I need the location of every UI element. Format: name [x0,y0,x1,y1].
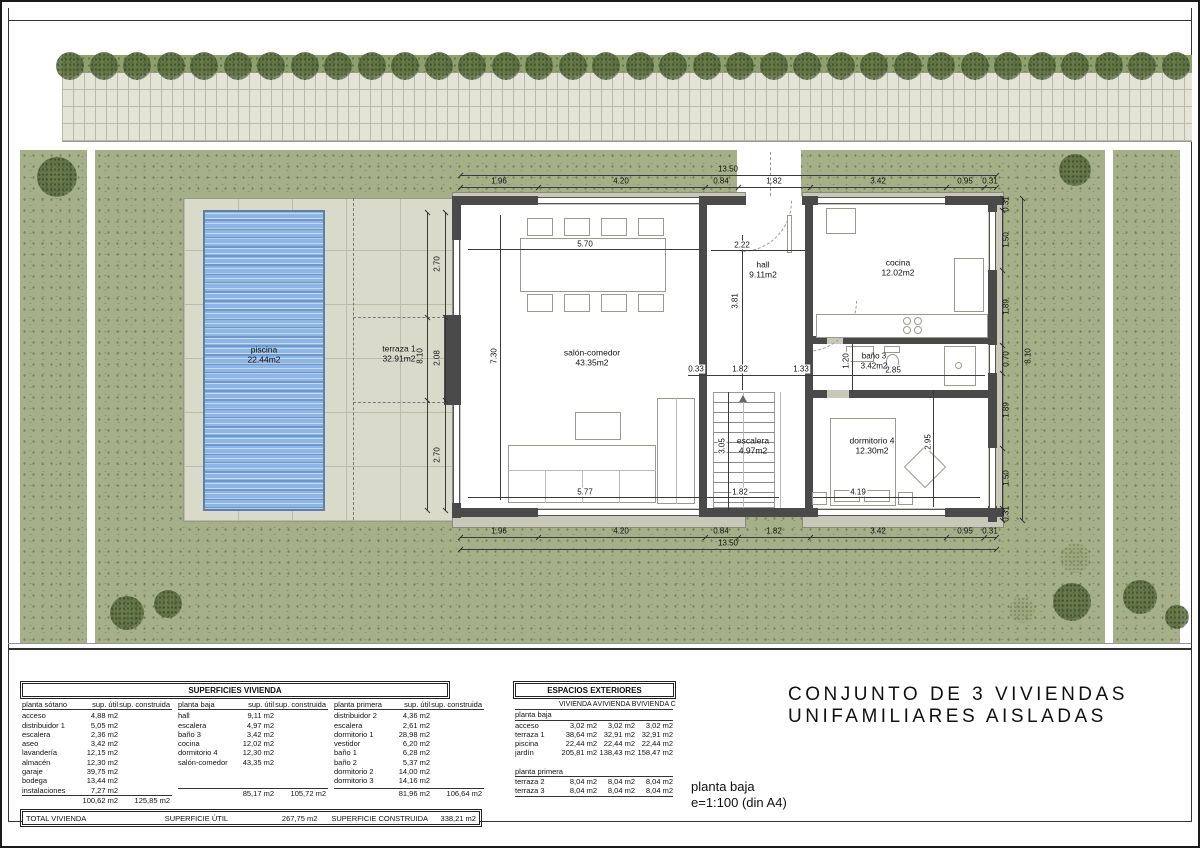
dimension-label: 0.31 [1002,506,1011,522]
table-cell: 158,47 m2 [635,748,673,757]
site-top-line [8,20,1191,21]
dimension-line [707,497,779,498]
furniture [575,412,621,440]
table-spacer [515,758,673,767]
dimension-line [688,375,832,376]
dimension-label: 13.50 [718,165,738,174]
table-cell: sup. construida [118,700,170,709]
window [453,240,460,315]
dimension-line [427,212,428,510]
table-cell: 12,02 m2 [236,739,274,748]
tree-icon [224,52,252,80]
tree-icon [1165,605,1189,629]
table-cell: 22,44 m2 [635,739,673,748]
table-cell: distribuidor 1 [22,721,80,730]
dimension-label: 2.70 [433,256,442,272]
table-row: planta primerasup. útilsup. construida [334,700,484,710]
project-title: CONJUNTO DE 3 VIVIENDAS UNIFAMILIARES AI… [788,684,1128,728]
dimension-line [468,497,702,498]
cooktop-burner-icon [955,362,962,369]
tree-icon [827,52,855,80]
dimension-label: 0.95 [957,527,973,536]
tree-icon [525,52,553,80]
label-piscina: piscina 22.44m2 [247,346,280,365]
table-cell: 28,98 m2 [392,730,430,739]
dormitorio4-name: dormitorio 4 [850,436,895,446]
table-cell [334,789,392,798]
table-row: dormitorio 214,00 m2 [334,767,484,776]
table-row: 85,17 m2105,72 m2 [178,788,328,798]
tree-icon [927,52,955,80]
table-cell: 4,36 m2 [392,711,430,720]
furniture [812,492,827,505]
dimension-label: 8.10 [1024,348,1033,364]
table-cell: baño 2 [334,758,392,767]
dimension-label: 4.20 [613,527,629,536]
table-row: aseo3,42 m2 [22,739,172,748]
table-cell: 14,16 m2 [392,776,430,785]
tree-icon [760,52,788,80]
table-cell: 9,11 m2 [236,711,274,720]
wall-segment [988,506,997,522]
table-cell: terraza 1 [515,730,559,739]
sidewalk-paving [62,72,1192,142]
table-cell [601,767,639,776]
label-terraza1: terraza 1 32.91m2 [382,345,416,364]
dimension-label: 3.81 [731,292,740,310]
dimension-label: 0.95 [957,177,973,186]
terrace-dashed-line-v [353,198,354,520]
table-cell: 12,30 m2 [236,748,274,757]
table-cell: 8,04 m2 [635,777,673,786]
piscina-area: 22.44m2 [247,354,280,364]
exteriores-title: ESPACIOS EXTERIORES [547,686,642,695]
total-vivienda-bar: TOTAL VIVIENDA SUPERFICIE ÚTIL 267,75 m2… [22,811,480,825]
table-cell [515,700,559,709]
table-cell [274,748,326,757]
dimension-label: 7.30 [490,347,499,365]
table-cell: baño 1 [334,748,392,757]
table-cell: planta baja [178,700,236,709]
table-cell: piscina [515,739,559,748]
hall-area: 9.11m2 [749,269,777,279]
table-row: planta baja [515,710,673,720]
table-row: bodega13,44 m2 [22,776,172,785]
table-row: distribuidor 15,05 m2 [22,721,172,730]
window [538,197,699,204]
wall-segment [699,508,813,517]
table-cell: 32,91 m2 [597,730,635,739]
table-row: planta sótanosup. útilsup. construida [22,700,172,710]
tree-icon [994,52,1022,80]
furniture [954,258,984,312]
wall-segment [988,196,997,212]
dimension-label: 0.33 [687,365,705,374]
table-row: 81,96 m2106,64 m2 [334,788,484,798]
table-cell: planta primera [515,767,563,776]
cocina-area: 12.02m2 [881,267,914,277]
dimension-label: 0.84 [713,527,729,536]
table-cell [274,739,326,748]
table-cell: 106,64 m2 [430,789,482,798]
corridor-line [780,392,781,508]
table-cell [430,758,482,767]
table-cell [118,748,170,757]
table-cell: instalaciones [22,786,80,795]
tree-icon [391,52,419,80]
dimension-label: 2.22 [733,241,751,250]
piscina-name: piscina [251,345,277,355]
tree-icon [1028,52,1056,80]
tree-icon [90,52,118,80]
table-row: escalera2,61 m2 [334,721,484,730]
access-dashed-line [770,152,771,196]
table-cell: 7,27 m2 [80,786,118,795]
table-cell: 13,44 m2 [80,776,118,785]
table-cell: bodega [22,776,80,785]
table-row: dormitorio 412,30 m2 [178,748,328,757]
dimension-label: 0.70 [1002,351,1011,367]
table-cell: aseo [22,739,80,748]
total-util-label: SUPERFICIE ÚTIL [165,814,262,823]
tree-icon [894,52,922,80]
table-cell: dormitorio 2 [334,767,392,776]
table-cell: 8,04 m2 [559,786,597,795]
table-cell: lavandería [22,748,80,757]
site-bottom-line-thin [8,643,1191,644]
table-cell: 3,02 m2 [597,721,635,730]
dimension-label: 1.89 [1002,402,1011,418]
bano3-name: baño 3 [862,352,886,361]
table-cell: terraza 3 [515,786,559,795]
table-cell: VIVIENDA B [598,700,637,709]
dimension-line [500,215,501,500]
table-cell [118,786,170,795]
wall-segment [813,390,827,398]
table-row: escalera2,36 m2 [22,730,172,739]
table-cell: cocina [178,739,236,748]
table-cell: planta sótano [22,700,80,709]
tree-icon [37,157,77,197]
table-cell: 43,35 m2 [236,758,274,767]
table-row: jardín205,81 m2138,43 m2158,47 m2 [515,748,673,757]
terraza1-area: 32.91m2 [382,353,415,363]
superficies-subtable: planta sótanosup. útilsup. construidaacc… [22,700,172,798]
table-cell: 39,75 m2 [80,767,118,776]
tree-icon [726,52,754,80]
project-title-line1: CONJUNTO DE 3 VIVIENDAS [788,684,1128,706]
bano3-area: 3.42m2 [861,361,888,370]
wall-segment [444,315,461,405]
wall-segment [452,508,538,517]
table-cell: 105,72 m2 [274,789,326,798]
table-row: instalaciones7,27 m2 [22,786,172,795]
dimension-label: 1.82 [731,488,749,497]
table-row: terraza 38,04 m28,04 m28,04 m2 [515,786,673,796]
table-cell: VIVIENDA C [636,700,675,709]
wall-segment [849,390,988,398]
dimension-label: 1.82 [766,527,782,536]
dimension-line [468,249,702,250]
terraza1-name: terraza 1 [382,344,416,354]
terrace-dashed-line-h2 [353,402,455,403]
table-cell: vestidor [334,739,392,748]
dimension-label: 1.89 [1002,299,1011,315]
table-cell: 5,05 m2 [80,721,118,730]
furniture-line [619,470,620,503]
dimension-label: 5.70 [576,240,594,249]
table-cell: 4,88 m2 [80,711,118,720]
cooktop-burner-icon [903,317,911,325]
furniture [826,208,856,234]
tree-icon [257,52,285,80]
tree-icon [793,52,821,80]
dimension-line [852,344,853,392]
dimension-label: 1.50 [1002,470,1011,486]
table-row: vestidor6,20 m2 [334,739,484,748]
table-cell [118,730,170,739]
table-cell [430,711,482,720]
table-cell: 22,44 m2 [597,739,635,748]
tree-icon [1162,52,1190,80]
table-cell [635,710,673,719]
tree-icon [1061,52,1089,80]
terrace-dashed-line-h1 [353,317,455,318]
table-cell [430,776,482,785]
tree-icon [425,52,453,80]
dimension-label: 4.19 [849,488,867,497]
table-cell: 81,96 m2 [392,789,430,798]
table-row: dormitorio 128,98 m2 [334,730,484,739]
window [538,509,699,516]
table-cell: escalera [334,721,392,730]
tree-icon [154,590,182,618]
dimension-line [711,250,805,251]
dimension-label: 3.42 [870,527,886,536]
wall-segment [699,196,707,512]
tree-icon [559,52,587,80]
table-cell [559,710,597,719]
tree-icon [1059,154,1091,186]
table-cell: 3,42 m2 [236,730,274,739]
table-cell [118,711,170,720]
superficies-subtable: planta primerasup. útilsup. construidadi… [334,700,484,798]
table-cell [118,758,170,767]
window [818,509,945,516]
table-row: terraza 138,64 m232,91 m232,91 m2 [515,730,673,739]
wall-segment [988,270,997,345]
table-cell: garaje [22,767,80,776]
exteriores-table: VIVIENDA AVIVIENDA BVIVIENDA Cplanta baj… [515,700,673,797]
table-cell [178,789,236,798]
tree-icon [693,52,721,80]
furniture [638,218,664,236]
access-path [737,150,801,198]
table-cell [118,767,170,776]
tree-icon [1053,583,1091,621]
dimension-label: 3.05 [718,437,727,455]
total-util-value: 267,75 m2 [262,814,318,823]
furniture [527,218,553,236]
stairs-up-arrow-icon [739,395,747,402]
furniture [898,492,913,505]
tree-icon [324,52,352,80]
dimension-label: 2.08 [433,350,442,366]
wall-segment [452,503,461,518]
garden-left-strip [20,150,87,643]
table-cell [118,721,170,730]
dimension-label: 1.20 [842,352,851,370]
furniture [816,314,988,338]
table-cell [430,767,482,776]
label-bano3: baño 3 3.42m2 [861,352,888,371]
dimension-line [820,375,985,376]
table-cell: 3,42 m2 [80,739,118,748]
total-label: TOTAL VIVIENDA [23,814,165,823]
table-cell: 5,37 m2 [392,758,430,767]
table-cell: 8,04 m2 [597,786,635,795]
dimension-label: 2.95 [924,433,933,451]
window [453,405,460,503]
tree-icon [157,52,185,80]
table-cell [430,721,482,730]
table-cell: 8,04 m2 [597,777,635,786]
wall-segment [452,196,461,240]
table-cell: salón-comedor [178,758,236,767]
table-cell [430,739,482,748]
dimension-label: 3.42 [870,177,886,186]
furniture-line [582,470,583,503]
dimension-label: 1.96 [491,527,507,536]
table-cell: 125,85 m2 [118,796,170,805]
superficies-subtable: planta bajasup. útilsup. construidahall9… [178,700,328,798]
table-cell: dormitorio 3 [334,776,392,785]
salon-area: 43.35m2 [575,357,608,367]
escalera-area: 4.97m2 [739,445,767,455]
salon-name: salón-comedor [564,348,620,358]
dimension-line [460,549,996,550]
table-cell: 2,61 m2 [392,721,430,730]
tree-icon [123,52,151,80]
cocina-name: cocina [886,258,911,268]
plan-scale: e=1:100 (din A4) [691,795,787,810]
table-row: acceso4,88 m2 [22,711,172,720]
table-cell: hall [178,711,236,720]
table-row: dormitorio 314,16 m2 [334,776,484,785]
label-escalera: escalera 4.97m2 [737,437,769,456]
table-cell: 2,36 m2 [80,730,118,739]
table-cell [430,730,482,739]
window [989,448,996,508]
tree-icon [492,52,520,80]
table-row: planta bajasup. útilsup. construida [178,700,328,710]
dimension-label: 1.33 [792,365,810,374]
table-cell: 85,17 m2 [236,789,274,798]
table-cell: 6,28 m2 [392,748,430,757]
table-row: 100,62 m2125,85 m2 [22,795,172,805]
dimension-label: 1.82 [766,177,782,186]
dimension-label: 1.96 [491,177,507,186]
table-cell: sup. útil [392,700,430,709]
label-hall: hall 9.11m2 [749,261,777,280]
table-row: VIVIENDA AVIVIENDA BVIVIENDA C [515,700,673,710]
window [989,345,996,373]
table-cell [430,748,482,757]
table-cell: 4,97 m2 [236,721,274,730]
table-row: lavandería12,15 m2 [22,748,172,757]
tree-icon [190,52,218,80]
table-cell [274,721,326,730]
table-row: escalera4,97 m2 [178,721,328,730]
label-cocina: cocina 12.02m2 [881,259,914,278]
table-cell: 6,20 m2 [392,739,430,748]
table-cell: almacén [22,758,80,767]
tree-icon [1123,580,1157,614]
table-cell: escalera [178,721,236,730]
furniture [527,294,553,312]
dimension-line [933,390,934,507]
superficies-title: SUPERFICIES VIVIENDA [188,686,281,695]
tree-icon [659,52,687,80]
superficies-title-box: SUPERFICIES VIVIENDA [22,683,448,697]
tree-icon [592,52,620,80]
cooktop-burner-icon [903,326,911,334]
table-cell: 8,04 m2 [559,777,597,786]
table-row: piscina22,44 m222,44 m222,44 m2 [515,739,673,748]
table-cell: acceso [515,721,559,730]
exteriores-title-box: ESPACIOS EXTERIORES [515,683,674,697]
tree-icon [626,52,654,80]
tree-icon [1009,597,1035,623]
tree-icon [1060,543,1090,573]
table-cell: dormitorio 4 [178,748,236,757]
table-cell: 14,00 m2 [392,767,430,776]
plan-name: planta baja [691,779,755,794]
dimension-line [813,497,980,498]
table-row: distribuidor 24,36 m2 [334,711,484,720]
dormitorio4-area: 12.30m2 [855,445,888,455]
furniture [601,294,627,312]
table-cell: baño 3 [178,730,236,739]
cooktop-burner-icon [914,326,922,334]
furniture-line [545,470,546,503]
tree-icon [56,52,84,80]
wall-segment [452,196,538,205]
table-cell: sup. construida [274,700,326,709]
site-bottom-line [8,648,1191,650]
table-cell: 22,44 m2 [559,739,597,748]
cooktop-burner-icon [914,317,922,325]
furniture [564,294,590,312]
table-cell: jardín [515,748,559,757]
table-row: baño 25,37 m2 [334,758,484,767]
tree-icon [1095,52,1123,80]
total-constr-label: SUPERFICIE CONSTRUIDA [317,814,440,823]
furniture [638,294,664,312]
tree-icon [291,52,319,80]
table-cell: sup. útil [80,700,118,709]
table-cell: escalera [22,730,80,739]
table-cell: 32,91 m2 [635,730,673,739]
table-cell [563,767,601,776]
dimension-label: 8.10 [416,348,425,364]
furniture [787,215,792,253]
table-row: terraza 28,04 m28,04 m28,04 m2 [515,777,673,786]
table-cell [274,730,326,739]
total-constr-value: 338,21 m2 [441,814,479,823]
table-cell: planta baja [515,710,559,719]
table-row: acceso3,02 m23,02 m23,02 m2 [515,721,673,730]
